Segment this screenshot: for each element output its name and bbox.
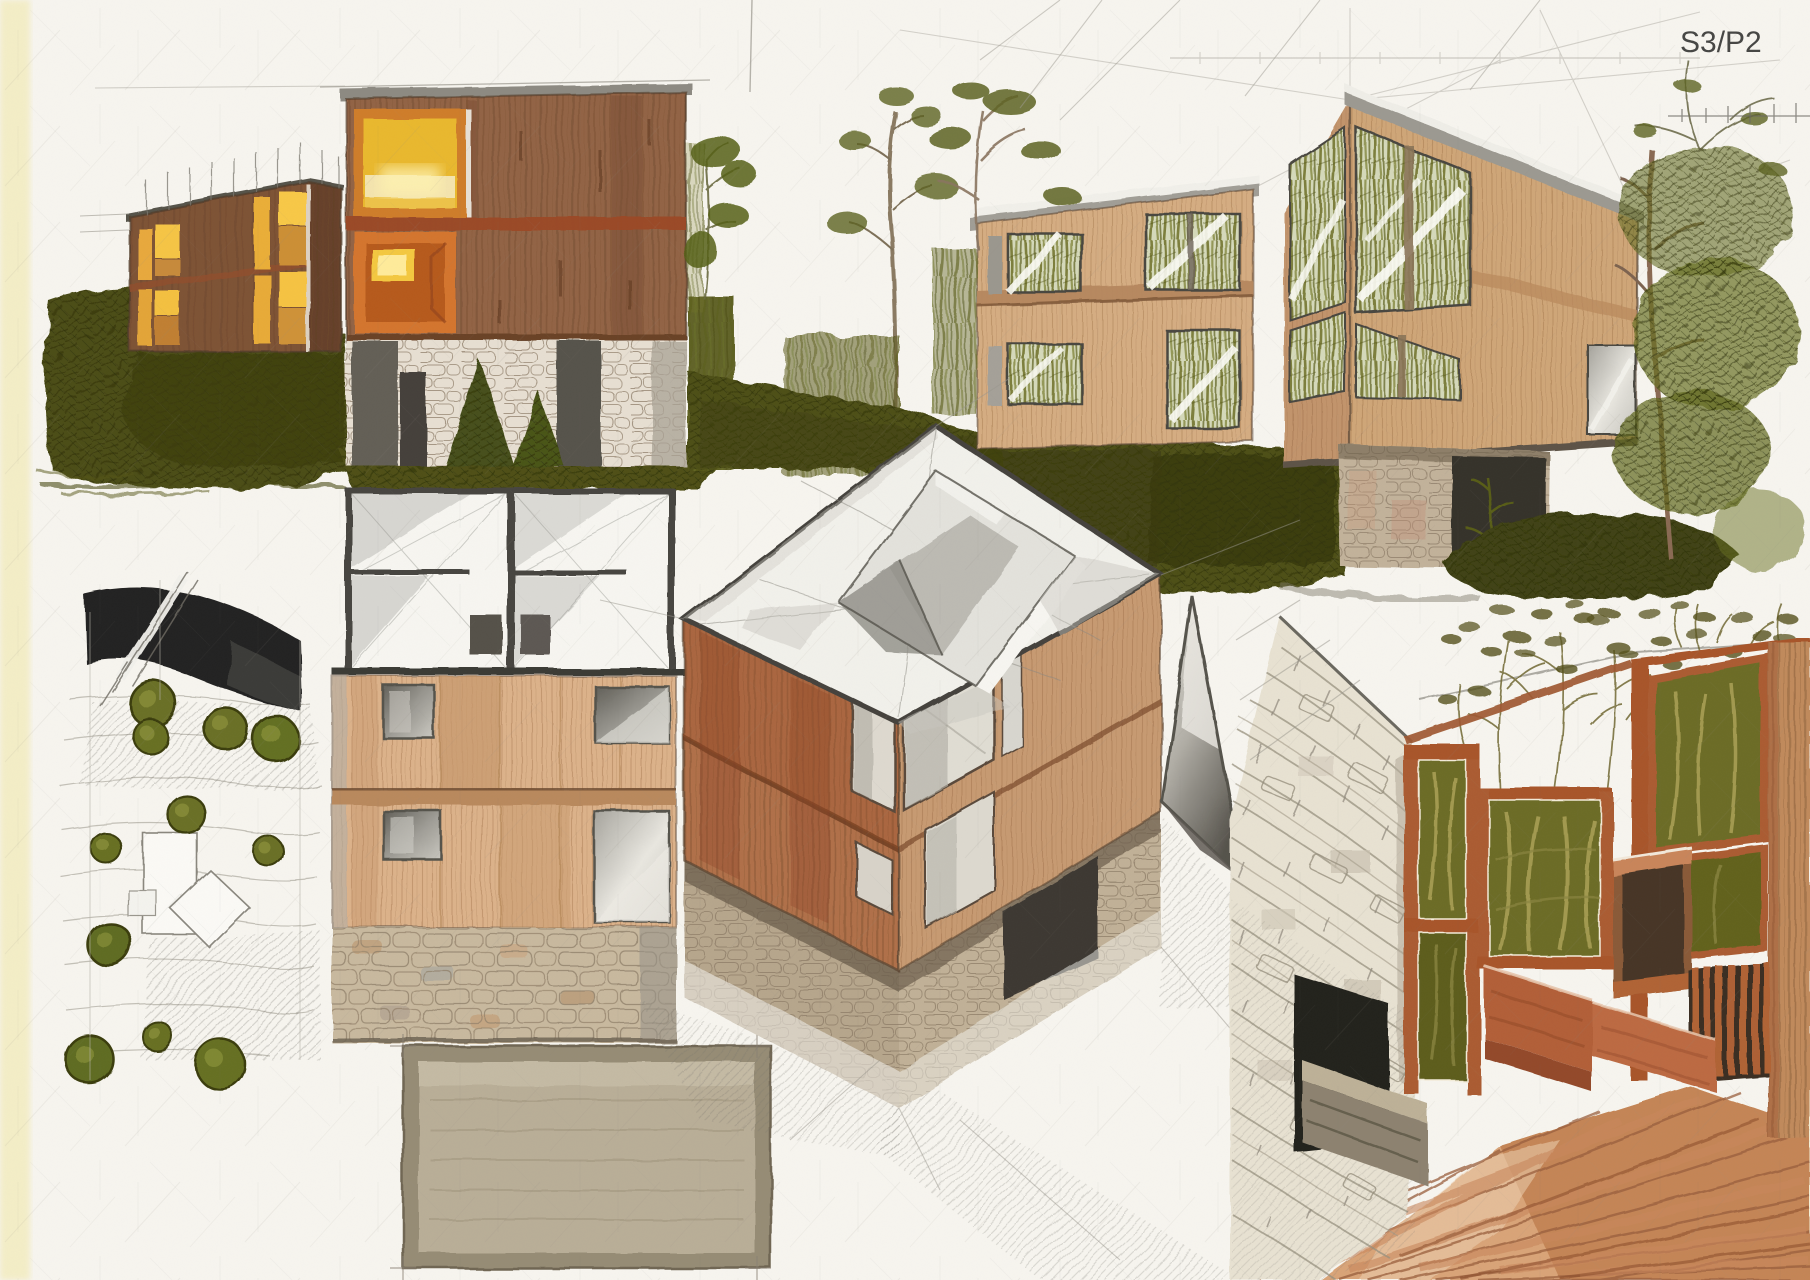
svg-text:S3/P2: S3/P2 [1680,26,1762,59]
